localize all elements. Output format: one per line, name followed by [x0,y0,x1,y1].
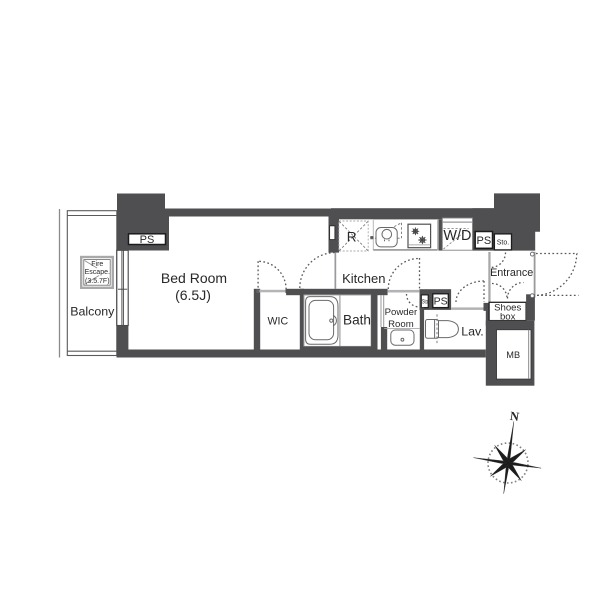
svg-text:Sto: Sto [422,299,428,306]
svg-text:MB: MB [506,350,520,360]
svg-text:Fire: Fire [91,261,103,268]
svg-text:Powder: Powder [385,307,418,318]
svg-text:W/D: W/D [443,228,471,244]
svg-text:PS: PS [477,235,492,247]
svg-text:N: N [509,409,520,424]
svg-text:Balcony: Balcony [70,305,115,319]
svg-text:R: R [347,229,357,244]
svg-text:Escape.: Escape. [85,269,110,276]
svg-text:WIC: WIC [268,315,289,327]
svg-text:Bed Room: Bed Room [161,270,227,286]
svg-text:PS: PS [434,296,448,308]
svg-text:Kitchen: Kitchen [342,271,385,286]
svg-text:PS: PS [140,234,155,246]
svg-text:Entrance: Entrance [490,267,533,279]
svg-text:Lav.: Lav. [461,325,484,339]
svg-text:(6.5J): (6.5J) [175,287,211,303]
svg-text:Sto.: Sto. [497,240,510,247]
svg-text:Bath: Bath [343,313,371,328]
svg-text:(3.5.7F): (3.5.7F) [85,278,110,285]
